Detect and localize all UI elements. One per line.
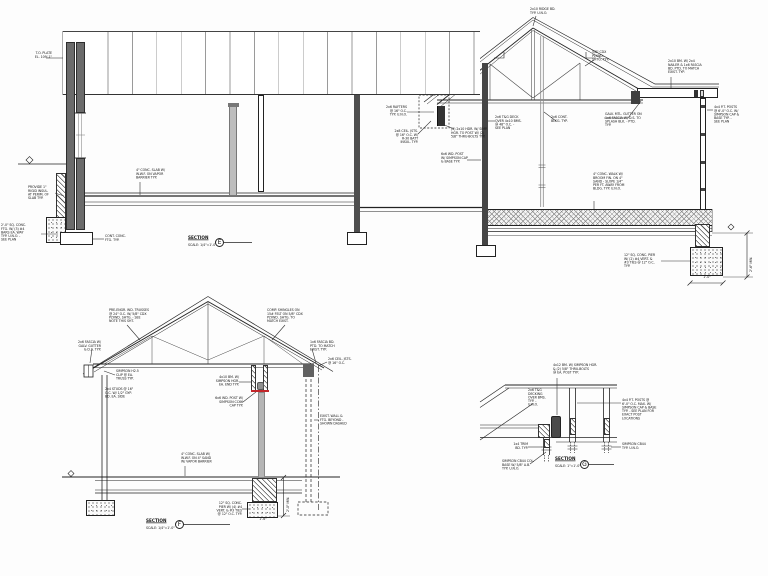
bubble-e: E	[215, 238, 224, 247]
f-dim-v: 2'-0" MIN.	[287, 497, 291, 512]
f-eave-l: 2x6 FASCIA W/ GALV. GUTTER & D.S. TYP.	[72, 341, 101, 352]
f-scale: SCALE: 1/4"=1'-0"	[146, 527, 180, 531]
f-post: 6x6 WD. POST W/ SIMPSON CC66 CAP TYP.	[210, 397, 243, 408]
g-posts: 4x4 P.T. POSTS @ 6'-0" O.C. MAX. W/ SIMP…	[622, 399, 663, 421]
t-gutter: GALV. MTL. GUTTER ON 1x6 FASCIA W/ D.S. …	[605, 113, 650, 128]
t-top-plate: T.O. PLATE EL. 109'-1"	[24, 52, 52, 59]
t-hgr: (2) 2x10 HDR. W/ SIMP. HGR. TO POST W/ (…	[451, 128, 492, 139]
f-title: SECTION	[146, 519, 166, 524]
t-rafters: 2x6 RAFTERS @ 16" O.C. TYP. U.N.O.	[382, 106, 407, 117]
f-pier: 12" SQ. CONC. PIER W/ (4) #4 VERT. & #3 …	[207, 502, 242, 517]
f-truss-l: PRE-ENGR. WD. TRUSSES @ 24" O.C. W/ 5/8"…	[109, 309, 152, 324]
t-sq-ftg: 2'-0" SQ. CONC. FTG. W/ (3) #4 BARS EA. …	[1, 224, 41, 242]
t-posts-r: 4x4 P.T. POSTS @ 6'-0" O.C. W/ SIMPSON C…	[714, 106, 756, 124]
e-title: SECTION	[188, 236, 208, 241]
t-slab: 4" CONC. SLAB W/ W.W.F. ON VAPOR BARRIER…	[136, 169, 174, 180]
f-bm: 4x10 BM. W/ SIMPSON HGR. EA. END TYP.	[212, 376, 239, 387]
t-dim-h: 1'-0"	[692, 276, 722, 280]
g-base-r: SIMPSON CB44 TYP. U.N.O.	[622, 443, 653, 450]
g-trim: 1x4 TRIM BD. TYP.	[503, 443, 528, 450]
t-dim-v: 2'-6" MIN.	[750, 257, 754, 272]
g-base: SIMPSON CB44 COL. BASE W/ 5/8" A.B. TYP.…	[502, 460, 539, 471]
g-deck: 2x6 T&G DECKING OVER BMS. TYP. - U.N.O.	[528, 389, 549, 407]
g-bm: 4x12 BM. W/ SIMPSON HGR. & (2) 5/8" THRU…	[553, 364, 606, 375]
bubble-f: F	[175, 520, 184, 529]
bubble-g: G	[580, 460, 589, 469]
drawing-sheet: T.O. PLATE EL. 109'-1"PROVIDE 1" RIGID I…	[0, 0, 768, 576]
f-cjst: 2x6 CEIL. JSTS. @ 16" O.C.	[328, 358, 359, 365]
t-rigid-insul: PROVIDE 1" RIGID INSUL. AT PERIM. OF SLA…	[28, 186, 55, 201]
t-walk: 4" CONC. WALK W/ BROOM FIN. ON 4" SAND -…	[593, 173, 638, 191]
t-shtg: 5/8" CDX PLYWD. SHTG. TYP.	[592, 51, 614, 62]
t-pier: 12" SQ. CONC. PIER W/ (2) #4 VERT. & #3 …	[624, 254, 662, 269]
f-dim-h: 1'-6"	[248, 518, 278, 522]
t-cont-ftg: CONT. CONC. FTG. TYP.	[105, 235, 132, 242]
t-blkg: 2x6 CONT. BLKG. TYP.	[551, 116, 575, 123]
g-title: SECTION	[555, 457, 575, 462]
f-studs: 2x4 STUDS @ 16" O.C. W/ 1/2" GYP. BD. EA…	[105, 388, 135, 399]
t-fascia: 2x10 BM. W/ 2x4 NAILER & 1x6 FASCIA BD. …	[668, 60, 714, 75]
f-dashed: EXIST. WALL & FTG. BEYOND - SHOWN DASHED	[320, 415, 354, 426]
f-truss-r: COMP. SHINGLES ON 15# FELT ON 5/8" CDX P…	[267, 309, 310, 324]
f-eave-r: 1x6 FASCIA BD. PTD. TO MATCH EXIST. TYP.	[310, 341, 341, 352]
f-clip: SIMPSON H2.5 CLIP @ EA. TRUSS TYP.	[116, 370, 147, 381]
t-post: 6x6 WD. POST W/ SIMPSON CAP & BASE TYP.	[441, 153, 470, 164]
t-ridge: 2x10 RIDGE BD. TYP. U.N.O.	[530, 8, 559, 15]
t-deck: 2x6 T&G DECK OVER 4x10 BMS. @ 48" O.C. -…	[495, 116, 526, 131]
f-slab: 4" CONC. SLAB W/ W.W.F. ON 4" SAND W/ VA…	[181, 453, 218, 464]
t-cjsts: 2x8 CEIL. JSTS. @ 16" O.C. W/ R-30 BATT …	[391, 130, 418, 145]
annotation-layer: T.O. PLATE EL. 109'-1"PROVIDE 1" RIGID I…	[0, 0, 768, 576]
